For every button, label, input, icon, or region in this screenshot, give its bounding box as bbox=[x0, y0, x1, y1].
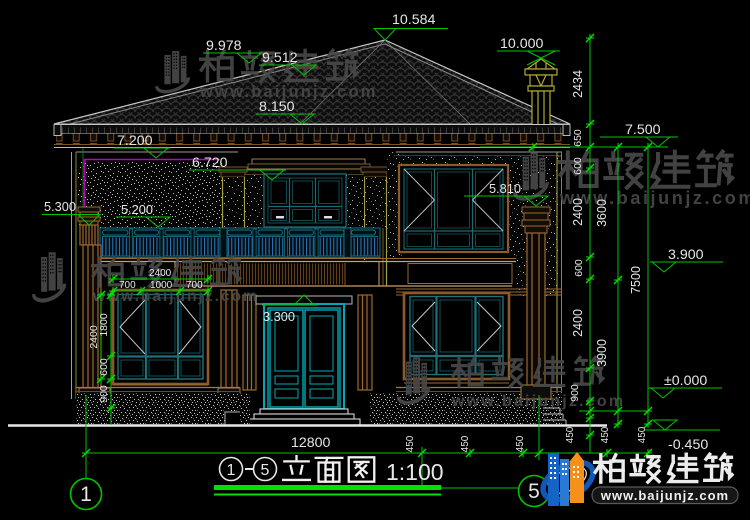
svg-text:1:100: 1:100 bbox=[386, 459, 444, 485]
svg-text:1000: 1000 bbox=[150, 280, 173, 291]
svg-text:600: 600 bbox=[572, 157, 584, 175]
svg-text:9.512: 9.512 bbox=[262, 50, 298, 66]
svg-text:900: 900 bbox=[98, 385, 110, 403]
svg-text:7500: 7500 bbox=[629, 266, 643, 294]
svg-text:600: 600 bbox=[98, 358, 110, 376]
svg-text:2400: 2400 bbox=[149, 268, 172, 279]
svg-text:www.baijunjz.com: www.baijunjz.com bbox=[451, 393, 625, 410]
svg-text:450: 450 bbox=[637, 426, 648, 443]
svg-text:-0.450: -0.450 bbox=[668, 437, 708, 453]
svg-text:1800: 1800 bbox=[98, 313, 110, 337]
svg-text:450: 450 bbox=[565, 426, 576, 443]
svg-text:www.baijunjz.com: www.baijunjz.com bbox=[559, 188, 750, 208]
svg-text:3.300: 3.300 bbox=[263, 309, 295, 324]
svg-text:450: 450 bbox=[405, 435, 416, 452]
svg-text:700: 700 bbox=[119, 280, 136, 291]
svg-text:9.978: 9.978 bbox=[206, 38, 242, 54]
svg-text:3600: 3600 bbox=[595, 199, 609, 227]
svg-text:1: 1 bbox=[80, 483, 92, 506]
svg-text:700: 700 bbox=[186, 280, 203, 291]
svg-text:5.200: 5.200 bbox=[121, 202, 153, 217]
svg-text:10.000: 10.000 bbox=[500, 36, 544, 52]
svg-text:5: 5 bbox=[261, 462, 270, 479]
svg-text:450: 450 bbox=[460, 435, 471, 452]
svg-text:2434: 2434 bbox=[571, 70, 585, 98]
svg-text:10.584: 10.584 bbox=[392, 12, 436, 28]
svg-text:2400: 2400 bbox=[571, 198, 585, 226]
svg-text:600: 600 bbox=[573, 259, 585, 277]
svg-text:5.300: 5.300 bbox=[44, 199, 76, 214]
svg-text:900: 900 bbox=[569, 384, 581, 402]
svg-text:7.500: 7.500 bbox=[625, 122, 661, 138]
svg-text:450: 450 bbox=[600, 426, 611, 443]
svg-text:450: 450 bbox=[515, 435, 526, 452]
svg-text:650: 650 bbox=[572, 129, 584, 147]
svg-text:8.150: 8.150 bbox=[259, 99, 295, 115]
svg-text:6.720: 6.720 bbox=[192, 155, 228, 171]
svg-text:±0.000: ±0.000 bbox=[664, 373, 707, 389]
svg-text:1: 1 bbox=[227, 462, 236, 479]
svg-text:2400: 2400 bbox=[571, 309, 585, 337]
svg-text:3.900: 3.900 bbox=[668, 247, 704, 263]
svg-text:7.200: 7.200 bbox=[117, 133, 153, 149]
svg-text:www.baijunjz.com: www.baijunjz.com bbox=[600, 488, 729, 503]
svg-text:12800: 12800 bbox=[291, 435, 331, 451]
svg-text:5.810: 5.810 bbox=[489, 181, 521, 196]
svg-text:5: 5 bbox=[528, 480, 540, 503]
svg-text:3900: 3900 bbox=[595, 339, 609, 367]
